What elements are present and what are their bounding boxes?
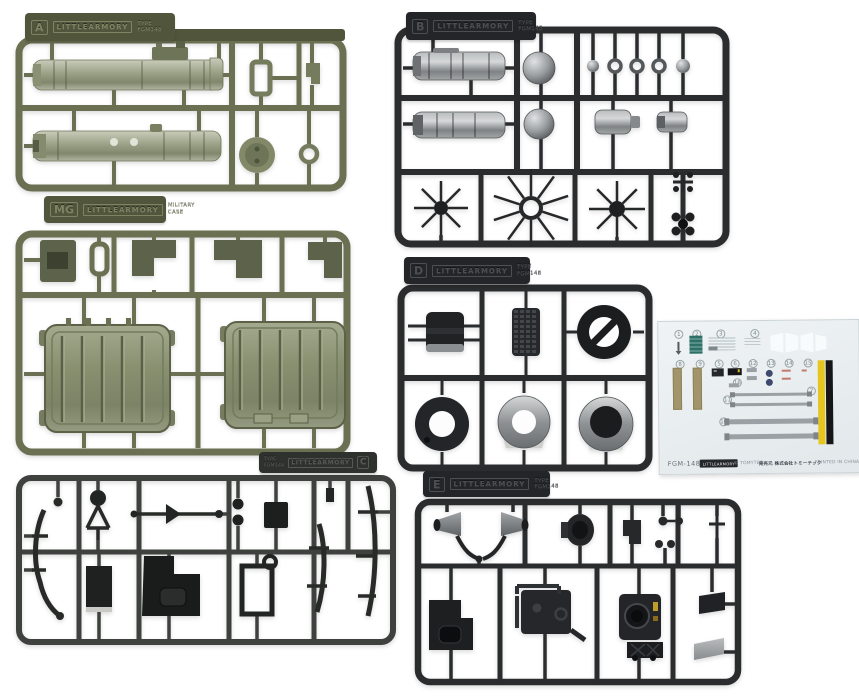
sprue-c-letter: C: [357, 456, 370, 469]
decal-distributor: 発売元 株式会社トミーテック: [759, 460, 822, 467]
decal-white-shape: [770, 333, 783, 353]
sprue-mg-tab: MG LITTLEARMORY MILITARY CASE: [44, 196, 166, 223]
decal-wide-strap: [725, 418, 817, 424]
decal-blue-dot: [766, 370, 773, 377]
decal-thin-strap: [731, 402, 811, 406]
sprue-e-letter: E: [429, 477, 445, 492]
sprue-e-type-label: TYPE FGM148: [534, 478, 558, 491]
decal-arrow-mark: [677, 342, 679, 351]
sprue-e-tab: E LITTLEARMORY TYPE FGM148: [423, 471, 550, 497]
sprue-mg-type-line2: CASE: [168, 210, 195, 216]
decal-number: 6: [731, 359, 740, 368]
sprue-b-type-line2: FGM148: [518, 26, 542, 32]
case-bottom-part: [39, 318, 175, 432]
decal-number: 4: [750, 329, 759, 338]
sprue-d-type-line2: FGM148: [517, 271, 541, 277]
clu-shell-part: [142, 556, 200, 616]
ring-cover-part: [577, 305, 631, 359]
sprue-e-type-line2: FGM148: [534, 484, 558, 490]
decal-arrow-head: [676, 351, 682, 355]
decal-printed-in: PRINTED IN CHINA: [815, 460, 859, 465]
sprue-b-letter: B: [412, 19, 428, 34]
brand-logo: LITTLEARMORY: [432, 265, 512, 277]
decal-blue-dot: [766, 379, 773, 386]
decal-number: 14: [785, 359, 794, 368]
sprue-mg-letter: MG: [50, 202, 78, 217]
decal-number: 15: [804, 358, 813, 367]
sprue-c-type-label: TYPE FGM148: [264, 457, 284, 467]
brand-logo: LITTLEARMORY: [433, 20, 513, 32]
dome-part: [523, 52, 555, 84]
sprue-d-type-label: TYPE FGM148: [517, 264, 541, 277]
sprue-e-parts: [429, 512, 725, 661]
decal-red-mark: [782, 378, 791, 380]
brand-logo: LITTLEARMORY: [83, 204, 163, 216]
decal-white-shape: [800, 332, 813, 352]
sprue-a-tab: A LITTLEARMORY TYPE FGM148: [25, 13, 175, 41]
decal-gray-rect: [747, 368, 757, 372]
eyepiece-part: [434, 512, 529, 563]
sprue-d-body: [396, 282, 654, 474]
decal-gray-rect: [747, 376, 757, 380]
decal-khaki-strip: [693, 368, 702, 410]
carry-handle-part: [252, 62, 270, 94]
decal-number: 13: [767, 359, 776, 368]
decal-text-block-mark: [708, 346, 717, 350]
decal-teal-label: [689, 336, 702, 354]
sprue-a-type-line2: FGM148: [137, 27, 161, 33]
sprue-e-body: [413, 466, 745, 694]
case-lid-part: [220, 322, 346, 428]
seeker-section-part: [595, 110, 631, 134]
decal-yellow-stripe: [818, 360, 826, 444]
tripod-head-part: [90, 490, 106, 506]
sprue-b-tab: B LITTLEARMORY TYPE FGM148: [406, 12, 536, 40]
sprue-b-type-label: TYPE FGM148: [518, 20, 542, 33]
fin-star-part: [494, 169, 568, 247]
sprue-c-frame: [19, 478, 393, 642]
sprue-a-body: [14, 34, 348, 194]
decal-wide-strap: [725, 433, 817, 439]
tripod-leg-part: [35, 510, 60, 616]
decal-gray-strip: [729, 383, 739, 387]
sprue-c-body: [14, 452, 398, 650]
clu-side-part: [619, 594, 663, 661]
decal-dark-label-mark: [714, 370, 717, 371]
decal-white-shape: [785, 333, 798, 353]
sprue-b-body: [393, 24, 733, 250]
sprue-d-letter: D: [410, 263, 427, 278]
sprue-a-tab-extension: [172, 29, 345, 41]
decal-red-mark: [782, 370, 791, 372]
brand-logo: LITTLEARMORY: [53, 21, 133, 33]
kit-photo: A LITTLEARMORY TYPE FGM148: [0, 0, 859, 700]
launch-tube-sight: [152, 47, 188, 60]
decal-red-mark: [802, 369, 807, 371]
sprue-c-type-line2: FGM148: [264, 463, 284, 468]
missile-body-part: [413, 52, 505, 80]
yellow-marking: [653, 602, 658, 611]
sprue-a-type-label: TYPE FGM148: [137, 21, 161, 34]
decal-number: 12: [749, 359, 758, 368]
decal-khaki-strip: [673, 368, 682, 410]
decal-black-stripe: [826, 360, 834, 444]
sprue-a-letter: A: [31, 20, 48, 35]
brand-logo: LITTLEARMORY: [288, 458, 352, 468]
sprue-d-tab: D LITTLEARMORY TYPE FGM148: [404, 257, 530, 284]
decal-sheet: 1 2 3 4 5 6 7 8 9 10 11 12 13 14 15 16: [657, 319, 859, 475]
tripod-leg-part: [317, 524, 324, 612]
lens-part: [561, 514, 594, 546]
decal-text-block: [744, 338, 760, 347]
decal-thin-strap: [731, 392, 811, 396]
brand-logo: LITTLEARMORY: [450, 478, 530, 490]
sprue-mg-type-label: MILITARY CASE: [168, 203, 195, 216]
decal-black-label-yellow: [738, 369, 740, 372]
decal-number: 5: [715, 359, 724, 368]
sprue-c-tab: TYPE FGM148 LITTLEARMORY C: [259, 452, 377, 473]
decal-number: 1: [674, 330, 683, 339]
sprue-mg-body: [14, 224, 352, 458]
decal-white-shape: [815, 334, 826, 351]
